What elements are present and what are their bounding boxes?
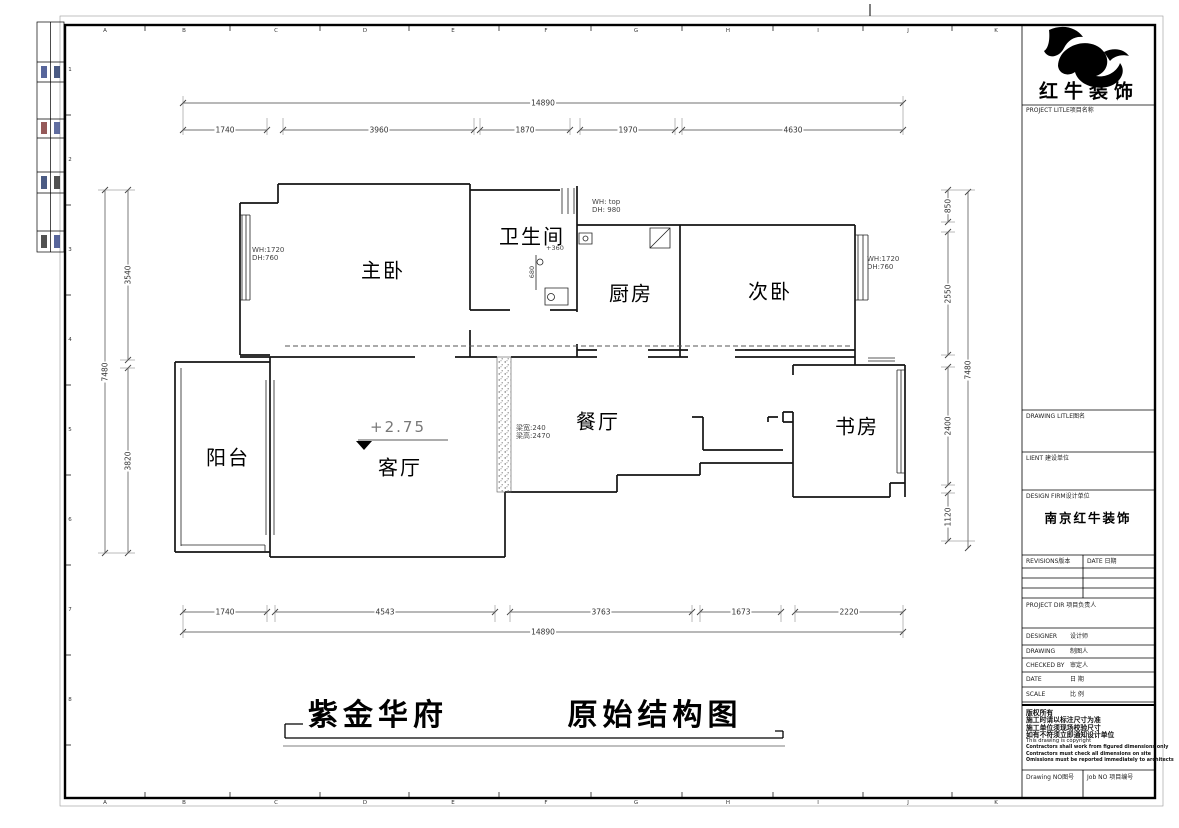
grid-letter-top: C bbox=[274, 28, 278, 34]
project-dir-label: PROJECT DIR 项目负责人 bbox=[1026, 603, 1096, 609]
dim-right-seg: 850 bbox=[944, 198, 952, 214]
dimension-lines bbox=[98, 96, 975, 638]
grid-number-left: 1 bbox=[68, 67, 72, 73]
dim-top-seg: 4630 bbox=[782, 126, 803, 134]
dim-top-seg: 1970 bbox=[617, 126, 638, 134]
room-label-balcony: 阳台 bbox=[206, 442, 250, 471]
dim-bottom-total: 14890 bbox=[530, 628, 556, 636]
client-label: LIENT 建设单位 bbox=[1026, 456, 1069, 462]
room-label-study: 书房 bbox=[835, 411, 879, 440]
grid-letter-bottom: E bbox=[451, 800, 454, 806]
brand-name: 红牛装饰 bbox=[1039, 77, 1139, 104]
dim-bottom-seg: 1673 bbox=[730, 608, 751, 616]
dim-right-seg: 1120 bbox=[944, 506, 952, 527]
project-name-title: 紫金华府 bbox=[308, 690, 448, 734]
copyright-en-line: Contractors shall work from figured dime… bbox=[1026, 745, 1151, 751]
bath-dim-annotation: 680 bbox=[529, 266, 537, 278]
date-cn-label: 日 期 bbox=[1070, 677, 1084, 683]
room-label-kitchen: 厨房 bbox=[609, 278, 653, 307]
level-mark: +2.75 bbox=[370, 418, 426, 436]
room-label-second-bedroom: 次卧 bbox=[748, 276, 792, 305]
dim-left-total: 7480 bbox=[101, 361, 109, 382]
hatched-wall-strip bbox=[497, 357, 511, 492]
dim-top-seg: 3960 bbox=[368, 126, 389, 134]
room-label-master-bedroom: 主卧 bbox=[361, 255, 405, 284]
grid-letter-top: J bbox=[907, 28, 909, 34]
designer-cn-label: 设计师 bbox=[1070, 634, 1088, 640]
drawing-name-title: 原始结构图 bbox=[568, 690, 743, 734]
copyright-en-line: Contractors must check all dimensions on… bbox=[1026, 752, 1151, 758]
grid-letter-top: K bbox=[994, 28, 998, 34]
grid-letter-top: E bbox=[451, 28, 454, 34]
beam-annotation: 梁宽:240 梁高:2470 bbox=[516, 424, 550, 441]
design-firm-label: DESIGN FIRM设计单位 bbox=[1026, 494, 1090, 500]
room-label-dining-room: 餐厅 bbox=[576, 406, 620, 435]
draftsman-label: DRAWING bbox=[1026, 649, 1055, 655]
annotation-line: WH:1720 bbox=[252, 246, 284, 254]
scale-label: SCALE bbox=[1026, 692, 1045, 698]
revisions-label: REVISIONS版本 bbox=[1026, 559, 1070, 565]
job-no-label: Job NO 项目编号 bbox=[1087, 775, 1133, 781]
date-label: DATE bbox=[1026, 677, 1042, 683]
dim-bottom-seg: 2220 bbox=[838, 608, 859, 616]
grid-letter-bottom: K bbox=[994, 800, 998, 806]
grid-number-left: 6 bbox=[68, 517, 72, 523]
annotation-line: DH:760 bbox=[867, 263, 899, 271]
room-label-living-room: 客厅 bbox=[378, 452, 422, 481]
level-marker-triangle bbox=[356, 441, 372, 450]
annotation-line: DH: 980 bbox=[592, 206, 621, 214]
grid-number-left: 8 bbox=[68, 697, 72, 703]
dim-right-seg: 2400 bbox=[944, 415, 952, 436]
top-window-annotation: WH: top DH: 980 bbox=[592, 198, 621, 215]
grid-letter-bottom: J bbox=[907, 800, 909, 806]
grid-letter-bottom: H bbox=[726, 800, 730, 806]
design-firm-value: 南京红牛装饰 bbox=[1044, 508, 1131, 527]
designer-label: DESIGNER bbox=[1026, 634, 1057, 640]
dim-bottom-seg: 3763 bbox=[590, 608, 611, 616]
grid-number-left: 4 bbox=[68, 337, 72, 343]
dim-left-seg: 3820 bbox=[124, 450, 132, 471]
revision-date-label: DATE 日期 bbox=[1087, 559, 1117, 565]
dim-top-seg: 1870 bbox=[514, 126, 535, 134]
draftsman-cn-label: 制图人 bbox=[1070, 649, 1088, 655]
checked-by-label: CHECKED BY bbox=[1026, 663, 1064, 669]
grid-letter-top: B bbox=[182, 28, 186, 34]
grid-number-left: 2 bbox=[68, 157, 72, 163]
grid-letter-top: I bbox=[817, 28, 819, 34]
dim-bottom-seg: 1740 bbox=[214, 608, 235, 616]
grid-letter-bottom: G bbox=[634, 800, 638, 806]
grid-letter-bottom: B bbox=[182, 800, 186, 806]
copyright-en-line: Omissions must be reported immediately t… bbox=[1026, 758, 1151, 764]
grid-letter-top: D bbox=[363, 28, 367, 34]
dim-right-total: 7480 bbox=[964, 359, 972, 380]
dim-right-seg: 2550 bbox=[944, 283, 952, 304]
copyright-block: 版权所有 施工时请以标注尺寸为准 施工单位须现场校验尺寸 如有不符须立即通知设计… bbox=[1026, 710, 1151, 764]
grid-letter-bottom: I bbox=[817, 800, 819, 806]
grid-number-left: 5 bbox=[68, 427, 72, 433]
grid-letter-top: A bbox=[103, 28, 107, 34]
checked-by-cn-label: 审定人 bbox=[1070, 663, 1088, 669]
drawing-no-label: Drawing NO图号 bbox=[1026, 775, 1074, 781]
annotation-line: 梁高:2470 bbox=[516, 432, 550, 440]
dim-bottom-seg: 4543 bbox=[374, 608, 395, 616]
second-window-annotation: WH:1720 DH:760 bbox=[867, 255, 899, 272]
dim-top-total: 14890 bbox=[530, 99, 556, 107]
drawing-sheet: A B C D E F G H I J K A B C D E F G H I … bbox=[0, 0, 1179, 828]
grid-letter-bottom: D bbox=[363, 800, 367, 806]
annotation-line: WH: top bbox=[592, 198, 621, 206]
grid-number-left: 7 bbox=[68, 607, 72, 613]
grid-letter-top: H bbox=[726, 28, 730, 34]
project-title-label: PROJECT LITLE项目名称 bbox=[1026, 108, 1094, 114]
bath-level-annotation: +360 bbox=[546, 245, 564, 253]
grid-letter-bottom: F bbox=[544, 800, 547, 806]
grid-letter-bottom: A bbox=[103, 800, 107, 806]
annotation-line: WH:1720 bbox=[867, 255, 899, 263]
grid-letter-top: F bbox=[544, 28, 547, 34]
grid-number-left: 3 bbox=[68, 247, 72, 253]
scale-cn-label: 比 例 bbox=[1070, 692, 1084, 698]
grid-letter-bottom: C bbox=[274, 800, 278, 806]
drawing-title-label: DRAWING LITLE图名 bbox=[1026, 414, 1085, 420]
annotation-line: DH:760 bbox=[252, 254, 284, 262]
grid-letter-top: G bbox=[634, 28, 638, 34]
dim-top-seg: 1740 bbox=[214, 126, 235, 134]
dim-left-seg: 3540 bbox=[124, 264, 132, 285]
master-window-annotation: WH:1720 DH:760 bbox=[252, 246, 284, 263]
